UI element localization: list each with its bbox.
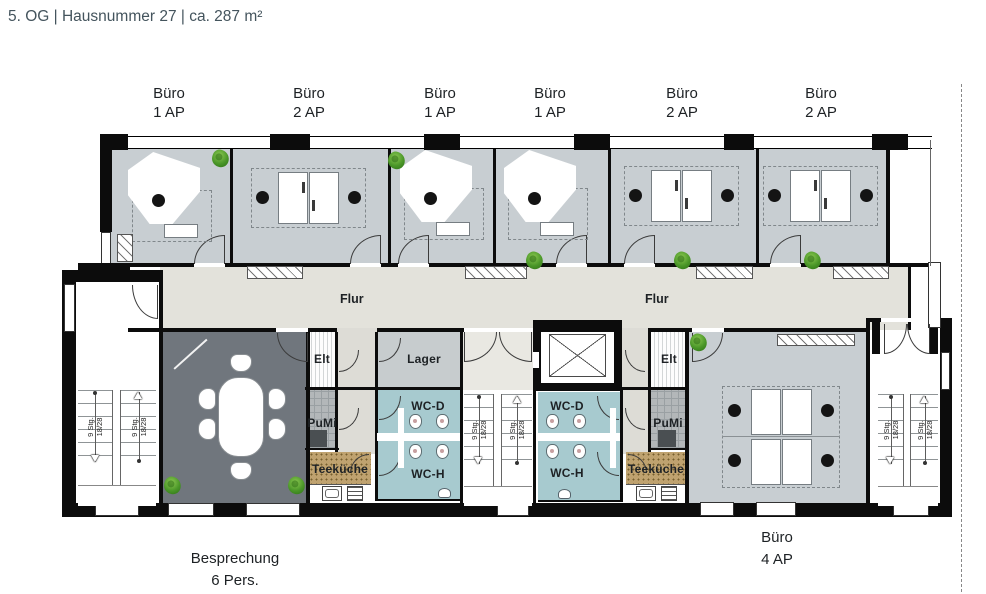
wall-pier-left xyxy=(78,263,130,280)
stair-landing xyxy=(878,486,938,506)
cluster-divider xyxy=(722,436,840,437)
desk xyxy=(821,170,851,222)
office-label-2: Büro2 AP xyxy=(264,84,354,122)
wall-elt-pumi-right xyxy=(620,387,688,390)
office-chair xyxy=(728,404,741,417)
wall-elt-corridor-left xyxy=(335,332,338,452)
stair-text: 9 Stg.18/28 xyxy=(882,410,900,450)
toilet-icon xyxy=(409,444,422,459)
window-corridor-right xyxy=(928,262,941,328)
door-gap-stair-right xyxy=(881,318,928,322)
corridor-label-right: Flur xyxy=(645,292,669,306)
meeting-chair xyxy=(230,462,252,480)
facade-window-band-top xyxy=(100,136,932,149)
stairwell-left-window xyxy=(64,284,75,332)
office-label-3: Büro1 AP xyxy=(395,84,485,122)
wall-corridor-lager xyxy=(375,332,378,501)
meeting-table-group xyxy=(198,352,290,484)
window-left-exterior xyxy=(101,232,111,265)
desk xyxy=(651,170,681,222)
wc-partition-right-v xyxy=(610,408,616,468)
wc-partition-left-h xyxy=(377,433,460,441)
office-chair xyxy=(821,404,834,417)
meeting-room-name: Besprechung xyxy=(191,550,279,567)
office-label-3-ap: 1 AP xyxy=(424,104,456,121)
wall-right-exterior xyxy=(940,320,952,517)
stair-ratio-label: 18/28 xyxy=(517,410,526,450)
desk xyxy=(782,439,812,485)
stair-arrow-up-icon xyxy=(513,396,521,403)
room-label-pumi-left: PuMi xyxy=(303,416,341,430)
corridor-label-left: Flur xyxy=(340,292,364,306)
stair-dot xyxy=(515,461,519,465)
office-label-6-ap: 2 AP xyxy=(805,104,837,121)
wall-pumi-teekueche-left xyxy=(305,448,339,450)
room-label-elt-left: Elt xyxy=(303,352,341,366)
office-chair xyxy=(721,189,734,202)
office-label-1-name: Büro xyxy=(153,85,185,102)
stair-steps-label: 9 Stg. xyxy=(916,410,925,450)
sideboard xyxy=(540,222,574,236)
window-bottom-5 xyxy=(700,502,734,516)
floor-plan-canvas: 5. OG | Hausnummer 27 | ca. 287 m² Büro1… xyxy=(0,0,986,594)
elevator-icon xyxy=(549,334,606,377)
stairs-middle: 9 Stg.18/28 9 Stg.18/28 xyxy=(464,394,532,505)
window-bottom-2 xyxy=(168,503,214,516)
workstation-4ap-office xyxy=(722,386,840,488)
office-chair xyxy=(768,189,781,202)
dish-rack-icon xyxy=(661,486,677,501)
toilet-icon xyxy=(409,414,422,429)
stair-dot xyxy=(477,395,481,399)
monitor-icon xyxy=(814,180,817,191)
stair-flight: 9 Stg.18/28 xyxy=(502,394,532,466)
kitchen-sink-icon xyxy=(322,486,342,501)
office-chair xyxy=(256,191,269,204)
room-label-wch-right: WC-H xyxy=(543,466,591,480)
door-arc-stair-right-2 xyxy=(907,324,930,354)
urinal-icon xyxy=(438,488,451,498)
elevator-door-gap xyxy=(533,352,539,368)
wall-stair-meeting xyxy=(159,330,163,507)
pumi-right-sink-unit xyxy=(658,430,676,447)
stair-dot xyxy=(923,461,927,465)
stair-ratio-label: 18/28 xyxy=(95,407,104,447)
room-label-wcd-left: WC-D xyxy=(404,399,452,413)
wall-left-exterior xyxy=(100,148,112,232)
stairs-right: 9 Stg.18/28 9 Stg.18/28 xyxy=(878,394,938,505)
meeting-room-label: Besprechung6 Pers. xyxy=(150,548,320,592)
wall-wc-right-bottom xyxy=(538,500,620,502)
door-arc-stair-right-1 xyxy=(884,324,907,354)
room-label-teekueche-left: Teeküche xyxy=(308,462,372,476)
stair-ratio-label: 18/28 xyxy=(925,410,934,450)
wc-partition-left-v xyxy=(398,408,404,468)
toilet-icon xyxy=(573,444,586,459)
office-label-2-name: Büro xyxy=(293,85,325,102)
stair-ratio-label: 18/28 xyxy=(479,410,488,450)
corridor-cabinet xyxy=(696,266,753,279)
office-label-6: Büro2 AP xyxy=(776,84,866,122)
office-label-5-name: Büro xyxy=(666,85,698,102)
office-label-5: Büro2 AP xyxy=(637,84,727,122)
urinal-icon xyxy=(558,489,571,499)
wall-core-midstair xyxy=(460,330,463,505)
office-chair xyxy=(821,454,834,467)
work-zone-outline xyxy=(722,386,840,488)
wall-office-5-6 xyxy=(756,148,759,264)
stair-landing xyxy=(464,486,532,506)
stair-steps-label: 9 Stg. xyxy=(470,410,479,450)
facade-pier-1 xyxy=(100,134,128,150)
stair-dot xyxy=(889,395,893,399)
office-label-1-ap: 1 AP xyxy=(153,104,185,121)
wall-office4-stair xyxy=(866,322,870,507)
workstation-1ap-office3 xyxy=(396,150,488,242)
stairs-left: 9 Stg.18/28 9 Stg.18/28 xyxy=(78,390,156,505)
stair-stringer xyxy=(493,394,502,486)
desk xyxy=(278,172,308,224)
meeting-chair xyxy=(198,418,216,440)
meeting-chair xyxy=(268,418,286,440)
desk xyxy=(751,389,781,435)
corridor-cabinet xyxy=(247,266,303,279)
facade-pier-5 xyxy=(724,134,754,150)
sideboard xyxy=(436,222,470,236)
stair-steps-label: 9 Stg. xyxy=(882,410,891,450)
stair-landing xyxy=(78,485,156,506)
kitchen-sink-icon xyxy=(636,486,656,501)
stair-flight: 9 Stg.18/28 xyxy=(464,394,493,466)
office-chair xyxy=(728,454,741,467)
sideboard xyxy=(164,224,198,238)
stair-arrow-down-icon xyxy=(91,455,99,462)
office-label-6-name: Büro xyxy=(805,85,837,102)
monitor-icon xyxy=(312,200,315,211)
corridor-cabinet xyxy=(465,266,527,279)
office-label-4-name: Büro xyxy=(534,85,566,102)
core-corridor-left-floor xyxy=(337,330,377,454)
workstation-1ap-office1 xyxy=(124,152,216,244)
stair-text: 9 Stg.18/28 xyxy=(86,407,104,447)
stair-flight: 9 Stg.18/28 xyxy=(78,390,112,464)
workstation-2ap-office5 xyxy=(624,166,739,226)
desk xyxy=(782,389,812,435)
office-label-4-ap: 1 AP xyxy=(534,104,566,121)
window-bottom-3 xyxy=(246,503,300,516)
toilet-icon xyxy=(546,414,559,429)
office4-cabinet xyxy=(777,334,855,346)
room-label-wcd-right: WC-D xyxy=(543,399,591,413)
window-right-exterior xyxy=(941,352,950,390)
office-label-2-ap: 2 AP xyxy=(293,104,325,121)
meeting-chair xyxy=(198,388,216,410)
workstation-2ap-office6 xyxy=(763,166,878,226)
corridor-cabinet xyxy=(833,266,889,279)
stair-arrow-up-icon xyxy=(134,392,142,399)
desk xyxy=(309,172,339,224)
facade-pier-4 xyxy=(574,134,610,150)
core-corridor-right-floor xyxy=(622,330,648,454)
office-label-5-ap: 2 AP xyxy=(666,104,698,121)
facade-pier-3 xyxy=(424,134,460,150)
workstation-1ap-office4 xyxy=(500,150,592,242)
opening-core-left xyxy=(337,328,377,332)
office4-label: Büro4 AP xyxy=(737,527,817,571)
meeting-room-capacity: 6 Pers. xyxy=(211,572,259,589)
office4-ap: 4 AP xyxy=(761,551,793,568)
monitor-icon xyxy=(302,182,305,193)
wall-office-6-end xyxy=(886,148,890,266)
dish-rack-icon xyxy=(347,486,363,501)
office-chair xyxy=(528,192,541,205)
wc-partition-right-h xyxy=(538,433,620,441)
workstation-2ap-office2 xyxy=(251,168,366,228)
stair-text: 9 Stg.18/28 xyxy=(916,410,934,450)
toilet-icon xyxy=(573,414,586,429)
toilet-icon xyxy=(436,444,449,459)
boundary-dashed-line xyxy=(961,84,962,592)
monitor-icon xyxy=(824,198,827,209)
opening-core-right xyxy=(622,328,648,332)
office1-cabinet xyxy=(117,234,133,262)
stair-steps-label: 9 Stg. xyxy=(86,407,95,447)
office-chair xyxy=(629,189,642,202)
room-label-pumi-right: PuMi xyxy=(646,416,690,430)
kitchen-counter-right xyxy=(626,484,686,503)
wall-pier-stair-right-1 xyxy=(872,322,880,354)
boundary-line-top-right xyxy=(930,140,931,266)
page-title: 5. OG | Hausnummer 27 | ca. 287 m² xyxy=(8,8,262,26)
stair-arrow-down-icon xyxy=(886,457,894,464)
wall-wc-left-bottom xyxy=(377,499,460,501)
wall-pumi-teekueche-right xyxy=(650,448,688,450)
office4-name: Büro xyxy=(761,529,793,546)
meeting-chair xyxy=(230,354,252,372)
wall-wcright-corridor xyxy=(620,390,623,502)
door-gap-office4ap xyxy=(692,328,724,332)
facade-pier-6 xyxy=(872,134,908,150)
desk xyxy=(751,439,781,485)
pumi-left-sink-unit xyxy=(309,430,327,447)
wall-elt-pumi-left xyxy=(305,387,462,390)
stair-steps-label: 9 Stg. xyxy=(130,407,139,447)
room-label-elt-right: Elt xyxy=(650,352,688,366)
wall-midstair-wcright xyxy=(533,390,536,505)
wall-office-1-2 xyxy=(230,148,233,264)
stair-stringer xyxy=(903,394,911,486)
toilet-icon xyxy=(436,414,449,429)
wall-corridor-eltright xyxy=(648,332,651,452)
wall-office-4-5 xyxy=(608,148,611,264)
window-bottom-6 xyxy=(756,502,796,516)
toilet-icon xyxy=(546,444,559,459)
stair-text: 9 Stg.18/28 xyxy=(130,407,148,447)
office-chair xyxy=(424,192,437,205)
desk xyxy=(682,170,712,222)
wall-office-3-4 xyxy=(493,148,496,264)
office-chair xyxy=(348,191,361,204)
office-chair xyxy=(152,194,165,207)
meeting-chair xyxy=(268,388,286,410)
stair-flight: 9 Stg.18/28 xyxy=(121,390,156,464)
room-label-lager: Lager xyxy=(398,352,450,366)
stair-flight: 9 Stg.18/28 xyxy=(878,394,903,466)
room-label-wch-left: WC-H xyxy=(404,467,452,481)
stair-text: 9 Stg.18/28 xyxy=(508,410,526,450)
facade-pier-2 xyxy=(270,134,310,150)
desk xyxy=(790,170,820,222)
door-gap-meeting xyxy=(276,328,308,332)
stair-ratio-label: 18/28 xyxy=(139,407,148,447)
monitor-icon xyxy=(685,198,688,209)
stair-flight: 9 Stg.18/28 xyxy=(911,394,938,466)
stair-steps-label: 9 Stg. xyxy=(508,410,517,450)
stair-text: 9 Stg.18/28 xyxy=(470,410,488,450)
stair-arrow-up-icon xyxy=(920,396,928,403)
stair-dot xyxy=(137,459,141,463)
stair-dot xyxy=(93,391,97,395)
office-label-3-name: Büro xyxy=(424,85,456,102)
stair-ratio-label: 18/28 xyxy=(891,410,900,450)
meeting-table xyxy=(218,377,264,457)
monitor-icon xyxy=(675,180,678,191)
office-chair xyxy=(860,189,873,202)
room-label-teekueche-right: Teeküche xyxy=(626,462,686,476)
stair-arrow-down-icon xyxy=(474,457,482,464)
office-label-4: Büro1 AP xyxy=(505,84,595,122)
stair-stringer xyxy=(112,390,121,485)
office-label-1: Büro1 AP xyxy=(124,84,214,122)
